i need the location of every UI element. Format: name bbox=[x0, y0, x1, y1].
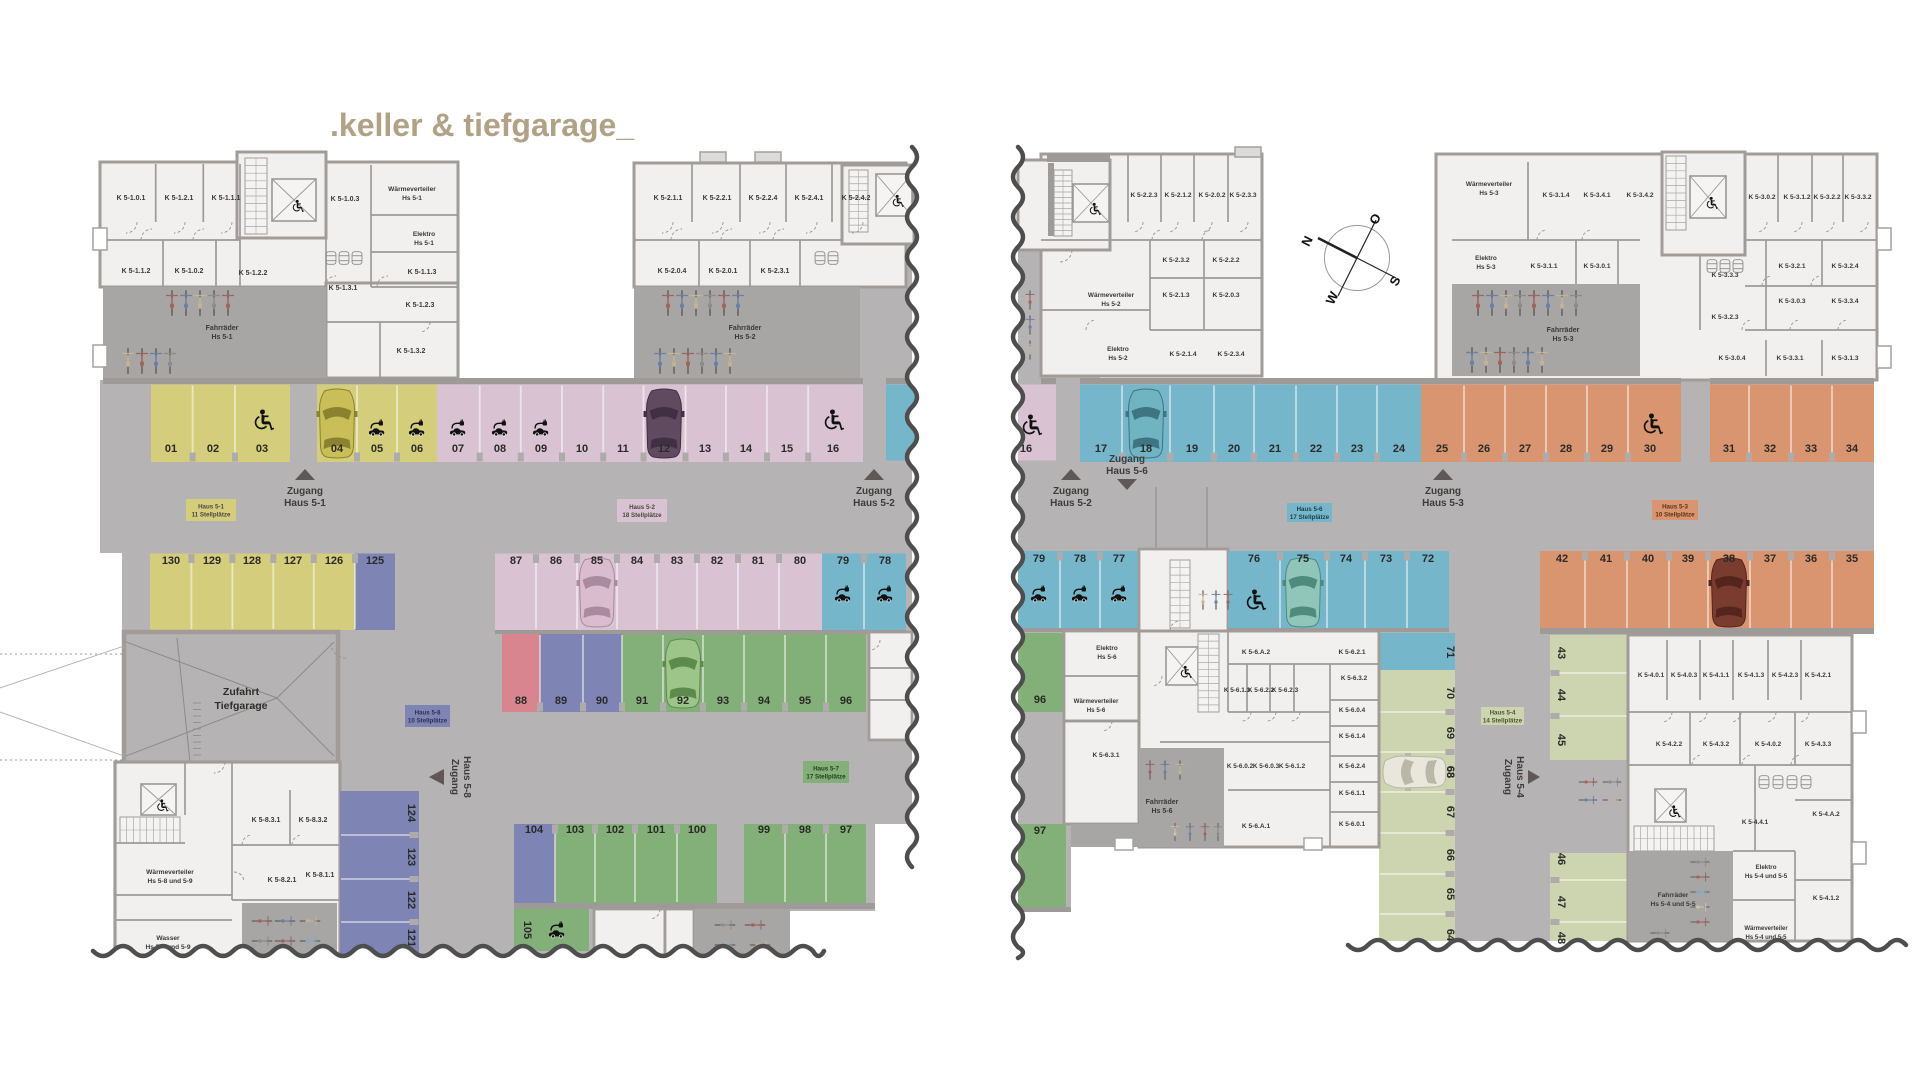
svg-text:66: 66 bbox=[1444, 849, 1456, 861]
svg-text:96: 96 bbox=[840, 695, 852, 707]
svg-text:K 5-3.1.4: K 5-3.1.4 bbox=[1542, 192, 1569, 199]
svg-text:01: 01 bbox=[165, 443, 177, 455]
svg-text:K 5-6.1.2: K 5-6.1.2 bbox=[1279, 763, 1306, 770]
svg-text:K 5-2.4.2: K 5-2.4.2 bbox=[842, 195, 871, 202]
svg-text:123: 123 bbox=[405, 848, 417, 866]
svg-text:K 5-6.3.2: K 5-6.3.2 bbox=[1341, 675, 1368, 682]
svg-text:03: 03 bbox=[256, 443, 268, 455]
svg-text:Haus 5-8: Haus 5-8 bbox=[461, 756, 472, 798]
svg-text:Hs 5-6: Hs 5-6 bbox=[1087, 707, 1106, 714]
svg-text:K 5-2.3.1: K 5-2.3.1 bbox=[761, 268, 790, 275]
svg-text:Fahrräder: Fahrräder bbox=[206, 325, 239, 332]
svg-text:45: 45 bbox=[1555, 734, 1567, 746]
svg-text:Hs 5-4 und 5-5: Hs 5-4 und 5-5 bbox=[1745, 873, 1788, 880]
svg-text:Wasser: Wasser bbox=[156, 935, 180, 942]
svg-text:K 5-3.2.3: K 5-3.2.3 bbox=[1711, 314, 1738, 321]
svg-text:21: 21 bbox=[1269, 443, 1281, 455]
svg-text:K 5-3.4.1: K 5-3.4.1 bbox=[1583, 192, 1610, 199]
svg-text:41: 41 bbox=[1600, 553, 1612, 565]
svg-text:72: 72 bbox=[1422, 553, 1434, 565]
svg-text:77: 77 bbox=[1113, 553, 1125, 565]
svg-text:19: 19 bbox=[1186, 443, 1198, 455]
svg-text:97: 97 bbox=[1034, 825, 1046, 837]
svg-text:K 5-2.2.2: K 5-2.2.2 bbox=[1212, 257, 1239, 264]
svg-text:101: 101 bbox=[647, 824, 665, 836]
svg-text:K 5-6.2.3: K 5-6.2.3 bbox=[1272, 687, 1299, 694]
svg-text:74: 74 bbox=[1340, 553, 1353, 565]
svg-text:31: 31 bbox=[1723, 443, 1735, 455]
svg-text:K 5-8.3.1: K 5-8.3.1 bbox=[252, 817, 281, 824]
svg-text:08: 08 bbox=[494, 443, 506, 455]
svg-text:Fahrräder: Fahrräder bbox=[1146, 799, 1179, 806]
svg-text:80: 80 bbox=[794, 555, 806, 567]
svg-text:Zugang: Zugang bbox=[287, 486, 323, 497]
svg-text:92: 92 bbox=[677, 695, 689, 707]
svg-text:127: 127 bbox=[284, 555, 302, 567]
svg-text:90: 90 bbox=[596, 695, 608, 707]
svg-text:K 5-2.3.3: K 5-2.3.3 bbox=[1229, 192, 1256, 199]
svg-text:K 5-2.1.4: K 5-2.1.4 bbox=[1169, 351, 1196, 358]
svg-text:Haus 5-7: Haus 5-7 bbox=[813, 766, 839, 773]
svg-text:33: 33 bbox=[1805, 443, 1817, 455]
svg-text:K 5-1.1.1: K 5-1.1.1 bbox=[212, 195, 241, 202]
svg-text:K 5-1.3.1: K 5-1.3.1 bbox=[329, 285, 358, 292]
svg-text:Hs 5-1: Hs 5-1 bbox=[414, 240, 434, 247]
svg-text:K 5-1.0.2: K 5-1.0.2 bbox=[175, 268, 204, 275]
svg-text:79: 79 bbox=[1033, 553, 1045, 565]
svg-text:12: 12 bbox=[658, 443, 670, 455]
svg-text:07: 07 bbox=[452, 443, 464, 455]
svg-text:Hs 5-8 und 5-9: Hs 5-8 und 5-9 bbox=[147, 878, 192, 885]
svg-text:05: 05 bbox=[371, 443, 383, 455]
svg-text:K 5-2.0.4: K 5-2.0.4 bbox=[658, 268, 687, 275]
svg-text:K 5-8.3.2: K 5-8.3.2 bbox=[299, 817, 328, 824]
svg-text:K 5-1.0.3: K 5-1.0.3 bbox=[331, 196, 360, 203]
svg-text:K 5-4.1.2: K 5-4.1.2 bbox=[1813, 895, 1840, 902]
svg-text:89: 89 bbox=[555, 695, 567, 707]
svg-text:K 5-1.0.1: K 5-1.0.1 bbox=[117, 195, 146, 202]
svg-text:69: 69 bbox=[1444, 727, 1456, 739]
svg-text:K 5-3.3.3: K 5-3.3.3 bbox=[1711, 272, 1738, 279]
svg-text:Hs 5-2: Hs 5-2 bbox=[734, 334, 755, 341]
svg-text:28: 28 bbox=[1560, 443, 1572, 455]
svg-text:Fahrräder: Fahrräder bbox=[729, 325, 762, 332]
svg-text:24: 24 bbox=[1393, 443, 1406, 455]
svg-text:K 5-2.0.1: K 5-2.0.1 bbox=[709, 268, 738, 275]
svg-text:46: 46 bbox=[1555, 853, 1567, 865]
svg-text:10: 10 bbox=[576, 443, 588, 455]
svg-text:K 5-3.1.2: K 5-3.1.2 bbox=[1783, 194, 1810, 201]
svg-text:06: 06 bbox=[411, 443, 423, 455]
svg-text:K 5-3.0.1: K 5-3.0.1 bbox=[1583, 263, 1610, 270]
svg-text:Zugang: Zugang bbox=[856, 486, 892, 497]
svg-text:95: 95 bbox=[799, 695, 811, 707]
svg-text:103: 103 bbox=[566, 824, 584, 836]
svg-text:K 5-2.1.1: K 5-2.1.1 bbox=[654, 195, 683, 202]
svg-text:44: 44 bbox=[1555, 689, 1567, 702]
svg-text:97: 97 bbox=[840, 824, 852, 836]
svg-text:Zugang: Zugang bbox=[1425, 486, 1461, 497]
svg-text:129: 129 bbox=[203, 555, 221, 567]
svg-text:Haus 5-6: Haus 5-6 bbox=[1106, 466, 1148, 477]
svg-text:K 5-6.2.4: K 5-6.2.4 bbox=[1339, 763, 1366, 770]
svg-text:K 5-3.2.2: K 5-3.2.2 bbox=[1813, 194, 1840, 201]
svg-text:K 5-1.1.3: K 5-1.1.3 bbox=[408, 269, 437, 276]
svg-text:67: 67 bbox=[1444, 806, 1456, 818]
svg-text:Haus 5-4: Haus 5-4 bbox=[1490, 710, 1516, 717]
svg-text:Elektro: Elektro bbox=[1096, 645, 1118, 652]
svg-text:36: 36 bbox=[1805, 553, 1817, 565]
svg-text:Hs 5-3: Hs 5-3 bbox=[1552, 336, 1573, 343]
svg-text:70: 70 bbox=[1444, 687, 1456, 699]
svg-text:105: 105 bbox=[521, 921, 533, 939]
svg-text:K 5-6.0.1: K 5-6.0.1 bbox=[1339, 821, 1366, 828]
svg-text:Wärmeverteiler: Wärmeverteiler bbox=[1744, 926, 1788, 932]
svg-text:04: 04 bbox=[331, 443, 344, 455]
svg-text:K 5-4.2.2: K 5-4.2.2 bbox=[1656, 741, 1683, 748]
svg-text:Haus 5-2: Haus 5-2 bbox=[853, 498, 895, 509]
svg-text:27: 27 bbox=[1519, 443, 1531, 455]
svg-text:29: 29 bbox=[1601, 443, 1613, 455]
svg-text:93: 93 bbox=[717, 695, 729, 707]
svg-text:18 Stellplätze: 18 Stellplätze bbox=[622, 512, 662, 519]
svg-text:Haus 5-3: Haus 5-3 bbox=[1422, 498, 1464, 509]
svg-text:K 5-2.2.3: K 5-2.2.3 bbox=[1130, 192, 1157, 199]
svg-text:K 5-4.3.3: K 5-4.3.3 bbox=[1805, 741, 1832, 748]
svg-text:100: 100 bbox=[688, 824, 706, 836]
svg-text:128: 128 bbox=[243, 555, 261, 567]
svg-text:126: 126 bbox=[325, 555, 343, 567]
svg-text:Zugang: Zugang bbox=[1053, 486, 1089, 497]
svg-text:K 5-4.1.3: K 5-4.1.3 bbox=[1738, 672, 1765, 679]
svg-text:Hs 5-3: Hs 5-3 bbox=[1479, 190, 1499, 197]
svg-text:K 5-1.2.2: K 5-1.2.2 bbox=[239, 270, 268, 277]
svg-text:23: 23 bbox=[1351, 443, 1363, 455]
svg-text:Zufahrt: Zufahrt bbox=[223, 686, 260, 698]
svg-text:76: 76 bbox=[1248, 553, 1260, 565]
svg-text:13: 13 bbox=[699, 443, 711, 455]
svg-text:10 Stellplätze: 10 Stellplätze bbox=[1655, 512, 1695, 519]
svg-text:Elektro: Elektro bbox=[1756, 864, 1777, 871]
svg-text:Zugang: Zugang bbox=[449, 759, 460, 795]
svg-text:11: 11 bbox=[617, 443, 629, 455]
svg-text:Hs 5-6: Hs 5-6 bbox=[1097, 654, 1117, 661]
svg-text:K 5-4.0.3: K 5-4.0.3 bbox=[1671, 672, 1698, 679]
svg-text:Hs 5-2: Hs 5-2 bbox=[1101, 301, 1121, 308]
svg-text:Zugang: Zugang bbox=[1502, 759, 1513, 795]
svg-text:K 5-2.4.1: K 5-2.4.1 bbox=[795, 195, 824, 202]
svg-text:47: 47 bbox=[1555, 896, 1567, 908]
svg-text:K 5-3.3.2: K 5-3.3.2 bbox=[1844, 194, 1871, 201]
svg-text:K 5-4.1.1: K 5-4.1.1 bbox=[1703, 672, 1730, 679]
svg-text:K 5-1.2.1: K 5-1.2.1 bbox=[165, 195, 194, 202]
svg-text:78: 78 bbox=[879, 555, 891, 567]
svg-text:Wärmeverteiler: Wärmeverteiler bbox=[1088, 292, 1135, 299]
svg-text:Fahrräder: Fahrräder bbox=[1658, 892, 1689, 899]
svg-text:40: 40 bbox=[1642, 553, 1654, 565]
svg-text:K 5-4.2.1: K 5-4.2.1 bbox=[1805, 672, 1832, 679]
svg-text:K 5-3.1.1: K 5-3.1.1 bbox=[1530, 263, 1557, 270]
svg-text:68: 68 bbox=[1444, 766, 1456, 778]
svg-text:K 5-3.1.3: K 5-3.1.3 bbox=[1831, 355, 1858, 362]
svg-text:Elektro: Elektro bbox=[1475, 255, 1497, 262]
svg-text:K 5-6.2.2: K 5-6.2.2 bbox=[1248, 687, 1275, 694]
svg-text:84: 84 bbox=[631, 555, 644, 567]
svg-text:K 5-2.2.1: K 5-2.2.1 bbox=[703, 195, 732, 202]
svg-text:K 5-6.0.4: K 5-6.0.4 bbox=[1339, 707, 1366, 714]
svg-text:14 Stellplätze: 14 Stellplätze bbox=[1483, 718, 1523, 725]
svg-text:K 5-3.0.3: K 5-3.0.3 bbox=[1778, 298, 1805, 305]
svg-text:Haus 5-4: Haus 5-4 bbox=[1514, 756, 1525, 798]
svg-text:Hs 5-2: Hs 5-2 bbox=[1108, 355, 1128, 362]
svg-text:Haus 5-2: Haus 5-2 bbox=[1050, 498, 1092, 509]
svg-text:Haus 5-6: Haus 5-6 bbox=[1297, 506, 1323, 513]
svg-text:K 5-2.0.3: K 5-2.0.3 bbox=[1212, 292, 1239, 299]
svg-text:32: 32 bbox=[1764, 443, 1776, 455]
svg-text:Wärmeverteiler: Wärmeverteiler bbox=[1074, 698, 1119, 705]
svg-text:91: 91 bbox=[636, 695, 648, 707]
svg-text:82: 82 bbox=[711, 555, 723, 567]
svg-text:Hs 5-4 und 5-5: Hs 5-4 und 5-5 bbox=[1650, 901, 1695, 908]
svg-text:K 5-3.2.4: K 5-3.2.4 bbox=[1831, 263, 1858, 270]
svg-text:Haus 5-3: Haus 5-3 bbox=[1662, 504, 1688, 511]
svg-text:130: 130 bbox=[162, 555, 180, 567]
svg-text:87: 87 bbox=[510, 555, 522, 567]
svg-text:Haus 5-1: Haus 5-1 bbox=[284, 498, 326, 509]
svg-text:35: 35 bbox=[1846, 553, 1858, 565]
svg-text:Haus 5-1: Haus 5-1 bbox=[198, 504, 224, 511]
svg-text:K 5-4.0.1: K 5-4.0.1 bbox=[1638, 672, 1665, 679]
svg-text:11 Stellplätze: 11 Stellplätze bbox=[192, 512, 231, 519]
svg-text:88: 88 bbox=[515, 695, 527, 707]
svg-text:78: 78 bbox=[1074, 553, 1086, 565]
svg-text:Hs 5-1: Hs 5-1 bbox=[402, 195, 422, 202]
svg-text:38: 38 bbox=[1723, 553, 1735, 565]
svg-text:Tiefgarage: Tiefgarage bbox=[215, 700, 268, 712]
svg-text:K 5-4.4.1: K 5-4.4.1 bbox=[1742, 819, 1769, 826]
svg-text:Haus 5-2: Haus 5-2 bbox=[629, 504, 655, 511]
svg-text:K 5-4.3.2: K 5-4.3.2 bbox=[1703, 741, 1730, 748]
svg-text:98: 98 bbox=[799, 824, 811, 836]
svg-text:K 5-2.3.4: K 5-2.3.4 bbox=[1217, 351, 1244, 358]
svg-text:K 5-2.1.2: K 5-2.1.2 bbox=[1164, 192, 1191, 199]
svg-text:71: 71 bbox=[1444, 646, 1456, 658]
svg-text:K 5-3.3.4: K 5-3.3.4 bbox=[1831, 298, 1858, 305]
svg-text:99: 99 bbox=[758, 824, 770, 836]
svg-text:K 5-8.1.1: K 5-8.1.1 bbox=[306, 872, 335, 879]
svg-text:Hs 5-6: Hs 5-6 bbox=[1151, 808, 1172, 815]
svg-text:.keller & tiefgarage_: .keller & tiefgarage_ bbox=[330, 107, 635, 143]
svg-text:37: 37 bbox=[1764, 553, 1776, 565]
svg-text:Wärmeverteiler: Wärmeverteiler bbox=[146, 869, 194, 876]
svg-text:K 5-4.A.2: K 5-4.A.2 bbox=[1812, 811, 1840, 818]
svg-text:65: 65 bbox=[1444, 888, 1456, 900]
svg-text:124: 124 bbox=[405, 804, 417, 823]
svg-text:96: 96 bbox=[1034, 694, 1046, 706]
svg-text:K 5-6.0.3: K 5-6.0.3 bbox=[1253, 763, 1280, 770]
svg-text:75: 75 bbox=[1297, 553, 1309, 565]
svg-text:K 5-6.1.4: K 5-6.1.4 bbox=[1339, 733, 1366, 740]
svg-text:K 5-2.2.4: K 5-2.2.4 bbox=[749, 195, 778, 202]
svg-text:25: 25 bbox=[1436, 443, 1448, 455]
svg-text:17: 17 bbox=[1095, 443, 1107, 455]
svg-text:85: 85 bbox=[591, 555, 603, 567]
svg-text:83: 83 bbox=[671, 555, 683, 567]
svg-text:K 5-4.2.3: K 5-4.2.3 bbox=[1772, 672, 1799, 679]
svg-text:K 5-2.3.2: K 5-2.3.2 bbox=[1162, 257, 1189, 264]
svg-text:39: 39 bbox=[1682, 553, 1694, 565]
svg-text:K 5-3.2.1: K 5-3.2.1 bbox=[1778, 263, 1805, 270]
svg-text:122: 122 bbox=[405, 891, 417, 909]
svg-text:K 5-6.1.3: K 5-6.1.3 bbox=[1224, 687, 1251, 694]
svg-text:02: 02 bbox=[207, 443, 219, 455]
svg-text:Wärmeverteiler: Wärmeverteiler bbox=[388, 186, 436, 193]
svg-text:10 Stellplätze: 10 Stellplätze bbox=[408, 718, 448, 725]
svg-text:K 5-6.2.1: K 5-6.2.1 bbox=[1338, 649, 1365, 656]
svg-text:K 5-2.1.3: K 5-2.1.3 bbox=[1162, 292, 1189, 299]
svg-text:K 5-6.0.2: K 5-6.0.2 bbox=[1227, 763, 1254, 770]
svg-text:K 5-8.2.1: K 5-8.2.1 bbox=[268, 877, 297, 884]
svg-text:K 5-3.0.4: K 5-3.0.4 bbox=[1718, 355, 1745, 362]
svg-text:Hs 5-3: Hs 5-3 bbox=[1476, 264, 1496, 271]
svg-text:K 5-4.0.2: K 5-4.0.2 bbox=[1755, 741, 1782, 748]
svg-text:17 Stellplätze: 17 Stellplätze bbox=[1290, 514, 1330, 521]
svg-text:K 5-6.A.2: K 5-6.A.2 bbox=[1242, 649, 1271, 656]
svg-text:34: 34 bbox=[1846, 443, 1859, 455]
svg-text:26: 26 bbox=[1478, 443, 1490, 455]
svg-text:K 5-3.4.2: K 5-3.4.2 bbox=[1626, 192, 1653, 199]
svg-text:86: 86 bbox=[550, 555, 562, 567]
svg-text:Zugang: Zugang bbox=[1109, 454, 1145, 465]
svg-text:17 Stellplätze: 17 Stellplätze bbox=[806, 774, 846, 781]
svg-text:K 5-2.0.2: K 5-2.0.2 bbox=[1198, 192, 1225, 199]
svg-text:Haus 5-8: Haus 5-8 bbox=[415, 710, 441, 717]
svg-text:K 5-1.3.2: K 5-1.3.2 bbox=[397, 348, 426, 355]
svg-text:Hs 5-1: Hs 5-1 bbox=[211, 334, 232, 341]
svg-text:73: 73 bbox=[1380, 553, 1392, 565]
svg-text:K 5-3.3.1: K 5-3.3.1 bbox=[1776, 355, 1803, 362]
svg-text:22: 22 bbox=[1310, 443, 1322, 455]
svg-text:125: 125 bbox=[366, 555, 384, 567]
svg-text:48: 48 bbox=[1555, 932, 1567, 944]
svg-text:20: 20 bbox=[1228, 443, 1240, 455]
svg-text:Fahrräder: Fahrräder bbox=[1547, 327, 1580, 334]
svg-text:09: 09 bbox=[535, 443, 547, 455]
svg-text:81: 81 bbox=[752, 555, 764, 567]
svg-text:Wärmeverteiler: Wärmeverteiler bbox=[1466, 181, 1513, 188]
svg-text:15: 15 bbox=[781, 443, 793, 455]
svg-text:30: 30 bbox=[1644, 443, 1656, 455]
svg-text:102: 102 bbox=[606, 824, 624, 836]
svg-text:K 5-1.1.2: K 5-1.1.2 bbox=[122, 268, 151, 275]
svg-text:94: 94 bbox=[758, 695, 771, 707]
svg-text:K 5-6.3.1: K 5-6.3.1 bbox=[1092, 752, 1119, 759]
svg-text:16: 16 bbox=[827, 443, 839, 455]
svg-text:K 5-3.0.2: K 5-3.0.2 bbox=[1748, 194, 1775, 201]
svg-text:42: 42 bbox=[1556, 553, 1568, 565]
svg-text:Elektro: Elektro bbox=[1107, 346, 1129, 353]
svg-text:79: 79 bbox=[837, 555, 849, 567]
svg-text:K 5-1.2.3: K 5-1.2.3 bbox=[406, 302, 435, 309]
svg-text:K 5-6.A.1: K 5-6.A.1 bbox=[1242, 823, 1271, 830]
svg-text:K 5-6.1.1: K 5-6.1.1 bbox=[1339, 790, 1366, 797]
svg-text:104: 104 bbox=[525, 824, 544, 836]
svg-text:14: 14 bbox=[740, 443, 753, 455]
svg-text:Elektro: Elektro bbox=[413, 231, 435, 238]
svg-text:43: 43 bbox=[1555, 647, 1567, 659]
